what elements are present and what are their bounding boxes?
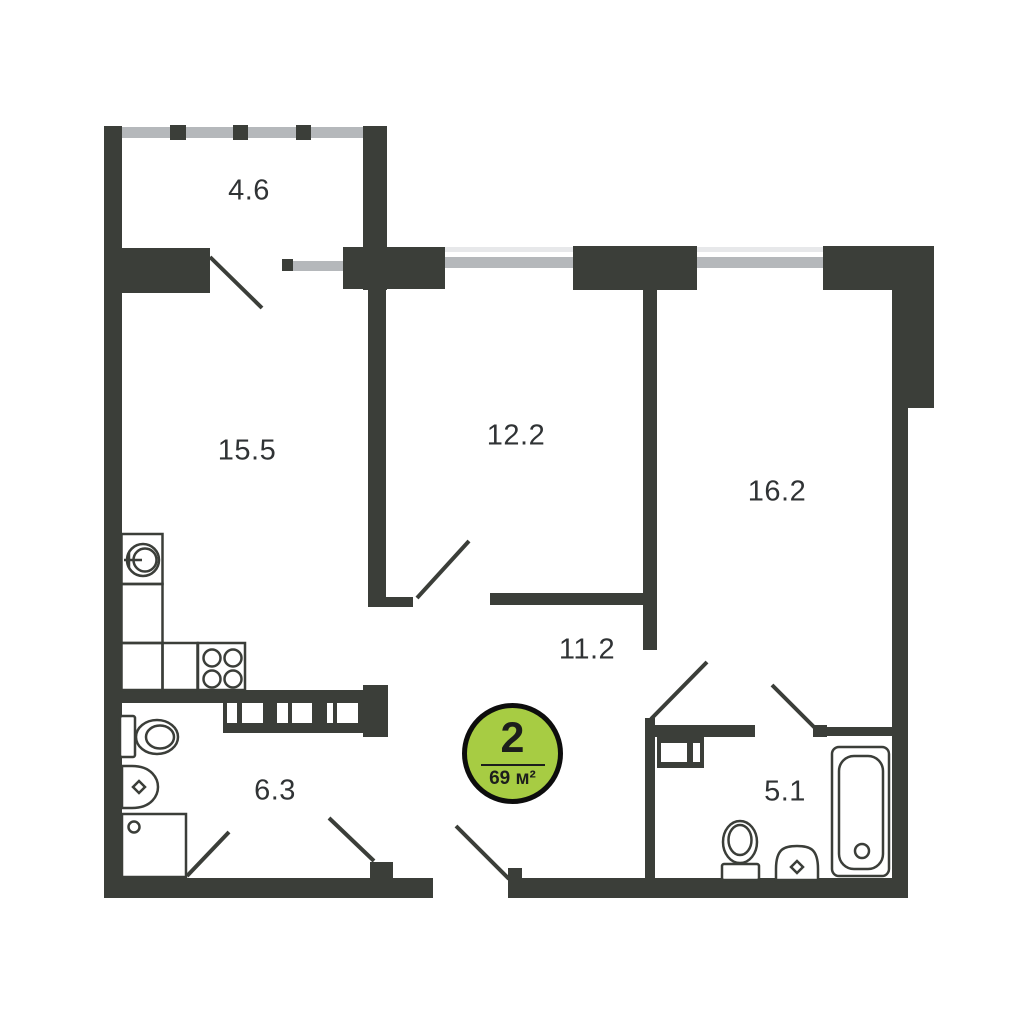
room-area-bedroom-2: 16.2 xyxy=(748,476,806,509)
kitchen-sink-icon xyxy=(124,544,159,576)
room-area-kitchen-living: 15.5 xyxy=(218,435,276,468)
bathtub-icon xyxy=(832,747,889,876)
shower-door-swing xyxy=(187,832,229,876)
room-area-bathroom-2: 5.1 xyxy=(764,776,806,809)
apartment-summary-badge: 2 69 м² xyxy=(462,703,563,804)
bathroom1-washbasin-icon xyxy=(122,766,158,808)
bathroom2-door-swing xyxy=(772,685,816,729)
entry-door-swing xyxy=(456,826,509,879)
balcony-door-swing xyxy=(210,257,262,308)
bathroom1-door-swing xyxy=(329,818,374,861)
room-area-balcony: 4.6 xyxy=(228,175,270,208)
badge-divider xyxy=(481,764,545,766)
room-area-hallway: 11.2 xyxy=(559,634,615,667)
room-area-bedroom-1: 12.2 xyxy=(487,420,545,453)
fixtures-layer xyxy=(0,0,1024,1024)
bathroom2-toilet-icon xyxy=(722,821,759,880)
floor-plan: 4.6 15.5 12.2 16.2 11.2 6.3 5.1 2 69 м² xyxy=(0,0,1024,1024)
rooms-count: 2 xyxy=(501,717,525,760)
bedroom1-door-swing xyxy=(417,541,469,598)
total-area: 69 м² xyxy=(489,769,536,788)
bathroom1-toilet-icon xyxy=(120,716,178,757)
bathroom2-washbasin-icon xyxy=(776,846,818,880)
room-area-bathroom-1: 6.3 xyxy=(254,775,296,808)
shower-tray-icon xyxy=(122,814,186,877)
bedroom2-door-swing xyxy=(651,662,707,719)
stove-icon xyxy=(198,643,245,690)
